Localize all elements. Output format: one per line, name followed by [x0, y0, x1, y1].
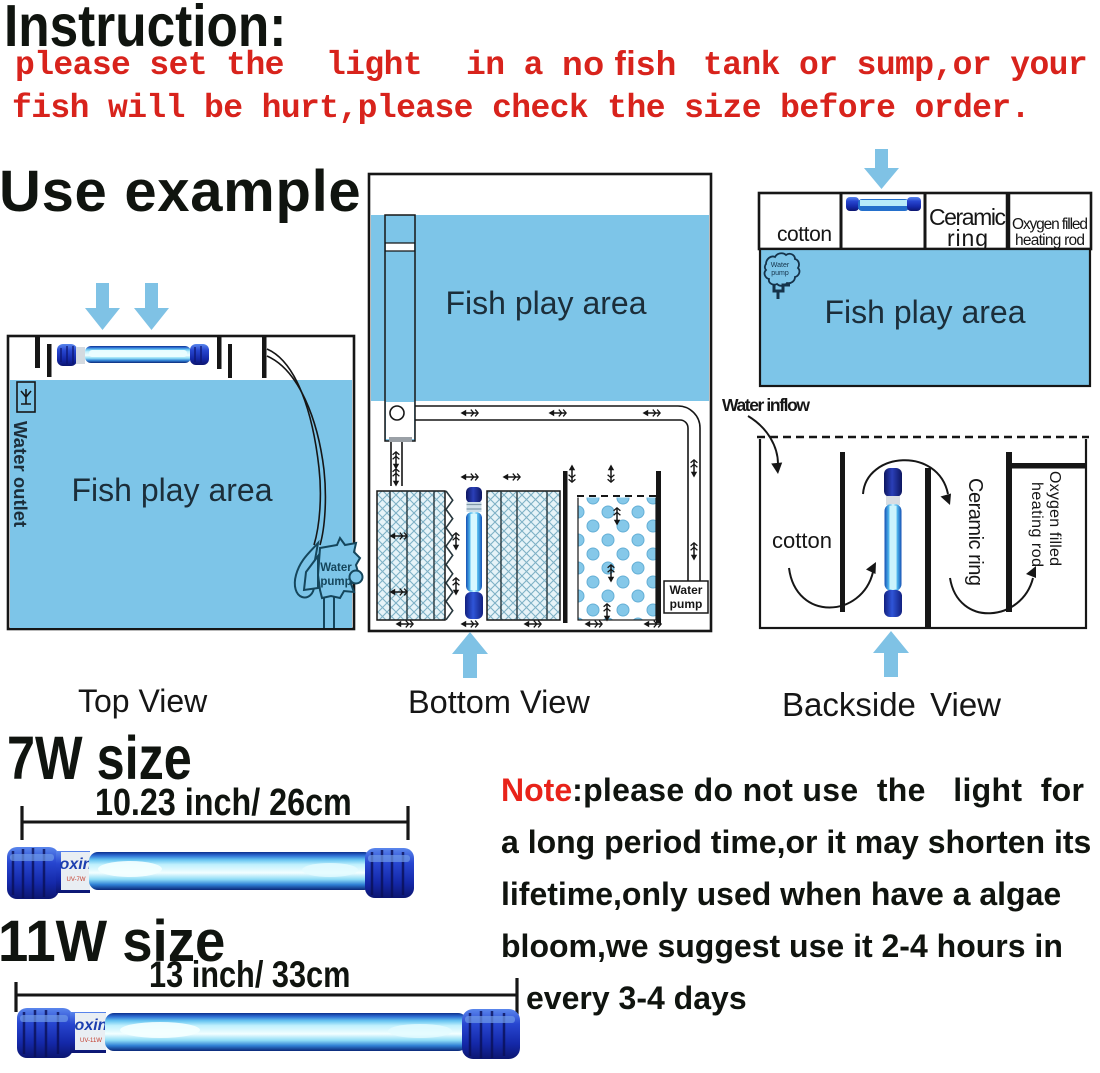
svg-text:Water inflow: Water inflow — [722, 395, 810, 415]
svg-text:Top View: Top View — [78, 683, 208, 719]
svg-text:Fish play area: Fish play area — [825, 294, 1026, 330]
svg-text:Oxygen filled: Oxygen filled — [1012, 216, 1088, 233]
svg-text:heating rod: heating rod — [1015, 232, 1085, 249]
svg-text:Fish play area: Fish play area — [446, 285, 647, 321]
svg-text:ring: ring — [947, 225, 988, 251]
svg-text:UV-11W: UV-11W — [80, 1038, 102, 1044]
svg-text:Bottom View: Bottom View — [408, 684, 590, 720]
svg-text:heating rod: heating rod — [1028, 482, 1045, 567]
svg-text:Water: Water — [771, 262, 790, 269]
svg-text:oxin: oxin — [60, 856, 93, 873]
svg-text:pump: pump — [320, 576, 351, 588]
svg-text:cotton: cotton — [777, 223, 832, 246]
svg-text:Oxygen filled: Oxygen filled — [1046, 471, 1063, 566]
svg-text:Ceramic ring: Ceramic ring — [964, 478, 986, 586]
svg-text:UV-7W: UV-7W — [66, 877, 85, 883]
svg-text:Water: Water — [320, 562, 352, 574]
svg-text:Fish play area: Fish play area — [72, 472, 273, 508]
svg-text:Water: Water — [670, 583, 703, 597]
svg-text:oxin: oxin — [75, 1017, 108, 1034]
svg-text:pump: pump — [771, 270, 789, 277]
svg-text:Water outlet: Water outlet — [10, 421, 31, 527]
svg-text:Backside View: Backside View — [782, 686, 1001, 723]
svg-text:cotton: cotton — [772, 528, 832, 553]
svg-text:pump: pump — [670, 597, 703, 611]
